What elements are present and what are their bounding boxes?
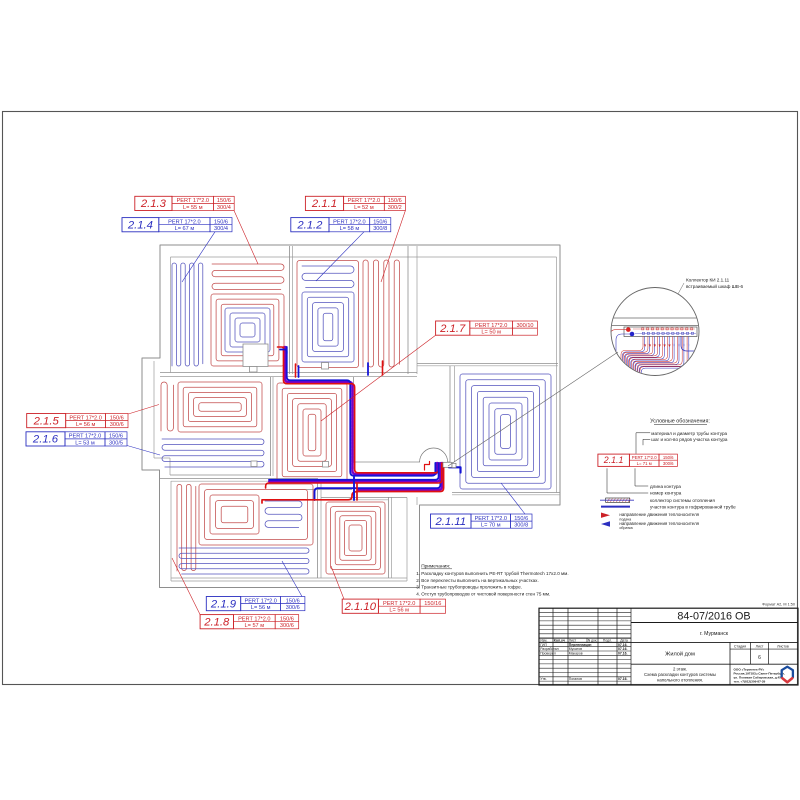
svg-text:300/10: 300/10 [516,323,533,329]
svg-text:L= 71 м: L= 71 м [637,461,652,466]
svg-text:150/6: 150/6 [109,434,123,440]
svg-text:PERT 17*2.0: PERT 17*2.0 [475,323,507,329]
svg-text:PERT 17*2.0: PERT 17*2.0 [69,434,101,440]
svg-text:L= 56 м: L= 56 м [76,422,96,428]
svg-text:2.1.8: 2.1.8 [203,616,230,628]
svg-text:1. Раскладку контуров выполнит: 1. Раскладку контуров выполнить PE-RT тр… [416,570,568,576]
svg-text:PERT 17*2.0: PERT 17*2.0 [177,198,209,204]
svg-text:Проверил: Проверил [540,652,556,656]
svg-text:Формат А2, М 1:50: Формат А2, М 1:50 [762,603,795,607]
svg-text:300/4: 300/4 [217,205,231,211]
svg-text:07.16.: 07.16. [618,652,627,656]
svg-text:L= 58 м: L= 58 м [340,226,360,232]
svg-text:300/6: 300/6 [280,623,294,629]
svg-text:L= 52 м: L= 52 м [354,205,374,211]
svg-text:L= 57 м: L= 57 м [245,623,265,629]
svg-text:2.1.3: 2.1.3 [140,198,167,210]
svg-text:300/5: 300/5 [109,440,123,446]
svg-text:Погалов: Погалов [569,677,582,681]
svg-text:участок контура в гофрированно: участок контура в гофрированной трубе [650,504,736,510]
svg-text:Стадия: Стадия [734,644,746,648]
svg-text:L= 50 м: L= 50 м [481,330,501,336]
svg-text:L= 56 м: L= 56 м [251,605,271,611]
svg-text:PERT 17*2.0: PERT 17*2.0 [168,219,200,225]
svg-text:коллектор системы отопления: коллектор системы отопления [650,498,715,503]
svg-text:2.1.7: 2.1.7 [439,323,466,335]
svg-text:2.1.9: 2.1.9 [210,598,237,610]
svg-text:150/6: 150/6 [214,219,228,225]
svg-text:L= 70 м: L= 70 м [481,523,501,529]
svg-text:Макаров: Макаров [569,652,583,656]
svg-text:150/6: 150/6 [217,198,231,204]
svg-text:PERT 17*2.0: PERT 17*2.0 [348,198,380,204]
svg-text:встраиваемый шкаф ШВ-6: встраиваемый шкаф ШВ-6 [686,283,743,289]
svg-text:07.16.: 07.16. [618,677,627,681]
svg-text:материал и диаметр трубы конту: материал и диаметр трубы контура [651,431,727,436]
svg-text:Листов: Листов [777,644,789,648]
svg-text:84-07/2016 ОВ: 84-07/2016 ОВ [677,610,750,622]
svg-text:тел. +7(812)309-87-29: тел. +7(812)309-87-29 [734,680,766,684]
svg-text:300/6: 300/6 [663,461,674,466]
svg-text:Утв.: Утв. [540,677,547,681]
svg-text:L= 55 м: L= 55 м [183,205,203,211]
svg-text:300/6: 300/6 [286,605,300,611]
svg-text:150/6: 150/6 [514,516,528,522]
svg-text:L= 56 м: L= 56 м [389,608,409,614]
svg-text:г. Мурманск: г. Мурманск [700,631,729,637]
svg-text:2.1.1: 2.1.1 [603,455,624,465]
svg-text:150/6: 150/6 [663,455,674,460]
svg-text:направление движения теплоноси: направление движения теплоносителя [619,512,699,517]
svg-text:номер контура: номер контура [650,491,682,496]
svg-text:PERT 17*2.0: PERT 17*2.0 [244,598,276,604]
svg-text:150/6: 150/6 [280,616,294,622]
svg-text:Дата: Дата [620,638,628,642]
svg-text:Схема раскладки контуров систе: Схема раскладки контуров системы [644,672,716,677]
svg-text:Условные обозначения:: Условные обозначения: [650,419,710,425]
svg-text:2 этаж.: 2 этаж. [673,667,687,672]
svg-text:300/2: 300/2 [388,205,402,211]
svg-text:2.1.5: 2.1.5 [33,415,60,427]
svg-text:150/6: 150/6 [286,598,300,604]
svg-text:4. Отступ трубопроводов от чис: 4. Отступ трубопроводов от чистовой пове… [416,590,550,596]
svg-text:Изм.: Изм. [540,638,547,642]
svg-text:PERT 17*2.0: PERT 17*2.0 [383,601,415,607]
svg-text:Кол.уч: Кол.уч [554,638,565,642]
svg-text:150/16: 150/16 [424,601,441,607]
svg-text:PERT 17*2.0: PERT 17*2.0 [475,516,507,522]
svg-text:2.1.11: 2.1.11 [435,516,467,528]
svg-text:шаг и кол-во рядов участка кон: шаг и кол-во рядов участка контура [651,437,728,442]
svg-text:Жилой дом: Жилой дом [665,651,695,658]
svg-text:2. Все перехлесты выполнить на: 2. Все перехлесты выполнить на вертикаль… [416,578,539,583]
svg-text:L= 53 м: L= 53 м [75,440,95,446]
svg-text:2.1.6: 2.1.6 [32,434,59,446]
svg-text:150/6: 150/6 [110,415,124,421]
svg-text:Лист: Лист [756,644,764,648]
svg-text:L= 67 м: L= 67 м [175,226,195,232]
svg-text:Коллектор КИ 2.1.11: Коллектор КИ 2.1.11 [686,278,730,283]
svg-text:Лист: Лист [569,638,577,642]
svg-text:300/6: 300/6 [110,422,124,428]
svg-text:300/8: 300/8 [373,226,387,232]
svg-text:2.1.10: 2.1.10 [344,601,377,613]
svg-text:6: 6 [758,655,761,661]
svg-text:150/6: 150/6 [388,198,402,204]
svg-text:PERT 17*2.0: PERT 17*2.0 [238,616,270,622]
svg-text:N док.: N док. [588,638,598,642]
svg-text:PERT 17*2.0: PERT 17*2.0 [333,219,365,225]
svg-text:300/4: 300/4 [214,226,228,232]
svg-text:3. Транзитные трубопроводы про: 3. Транзитные трубопроводы проложить в г… [416,585,522,590]
svg-text:напольного отопления.: напольного отопления. [657,678,703,683]
svg-text:2.1.2: 2.1.2 [296,219,323,231]
svg-text:2.1.4: 2.1.4 [127,219,153,231]
svg-text:300/8: 300/8 [514,523,528,529]
svg-text:150/6: 150/6 [373,219,387,225]
svg-text:длина контура: длина контура [650,484,681,489]
svg-text:2.1.1: 2.1.1 [311,198,337,210]
svg-text:PERT 17*2.0: PERT 17*2.0 [69,415,101,421]
svg-text:Подл.: Подл. [603,638,612,642]
svg-text:PERT 17*2.0: PERT 17*2.0 [632,455,658,460]
svg-text:обратка: обратка [619,526,632,530]
